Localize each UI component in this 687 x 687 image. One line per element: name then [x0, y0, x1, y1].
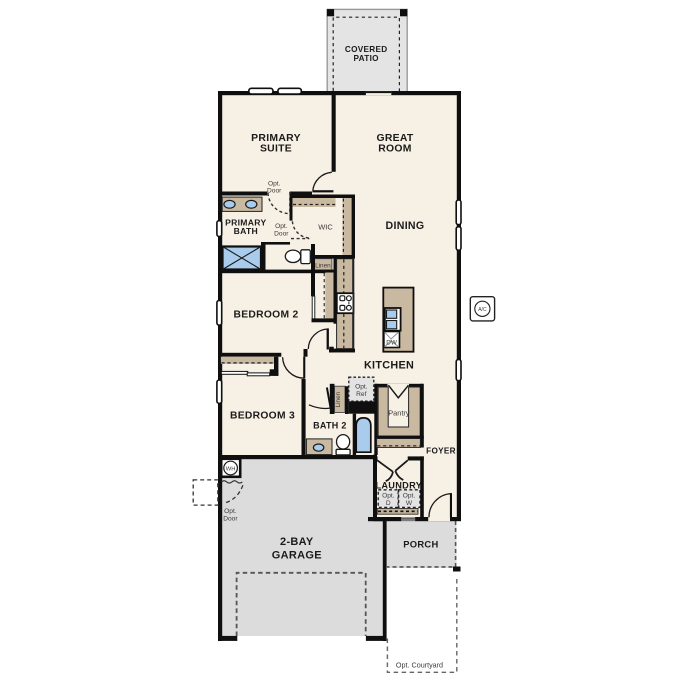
svg-text:Opt.: Opt.: [403, 493, 416, 500]
svg-text:GARAGE: GARAGE: [272, 549, 322, 561]
svg-text:Opt.: Opt.: [224, 508, 237, 515]
svg-text:Opt.: Opt.: [355, 384, 368, 391]
svg-text:W: W: [406, 500, 413, 507]
svg-text:WIC: WIC: [318, 223, 333, 232]
svg-text:A/C: A/C: [478, 307, 487, 313]
svg-text:2-BAY: 2-BAY: [280, 536, 314, 548]
svg-text:PRIMARY: PRIMARY: [251, 133, 301, 144]
svg-text:ROOM: ROOM: [378, 144, 412, 155]
svg-text:WH: WH: [226, 467, 236, 473]
svg-text:Linen: Linen: [335, 391, 342, 407]
svg-text:Linen: Linen: [315, 263, 331, 270]
svg-text:Pantry: Pantry: [388, 408, 410, 417]
svg-text:DINING: DINING: [386, 220, 425, 232]
svg-text:PORCH: PORCH: [403, 539, 438, 550]
svg-text:PATIO: PATIO: [354, 54, 380, 63]
svg-text:BEDROOM 3: BEDROOM 3: [230, 411, 295, 422]
svg-text:Door: Door: [223, 515, 238, 522]
svg-text:Opt. Courtyard: Opt. Courtyard: [396, 661, 443, 670]
svg-text:Ref: Ref: [356, 391, 366, 398]
svg-text:COVERED: COVERED: [345, 45, 388, 54]
svg-text:Door: Door: [274, 230, 289, 237]
svg-text:Door: Door: [267, 188, 282, 195]
svg-text:BEDROOM 2: BEDROOM 2: [233, 309, 298, 320]
svg-text:D: D: [386, 500, 391, 507]
svg-text:Opt.: Opt.: [382, 493, 395, 500]
svg-text:SUITE: SUITE: [260, 144, 292, 155]
svg-text:FOYER: FOYER: [426, 446, 456, 455]
svg-text:BATH 2: BATH 2: [313, 420, 347, 430]
svg-text:DW: DW: [386, 339, 398, 346]
svg-text:BATH: BATH: [234, 226, 258, 236]
svg-text:Opt.: Opt.: [268, 180, 281, 187]
svg-text:GREAT: GREAT: [376, 133, 413, 144]
svg-text:KITCHEN: KITCHEN: [364, 360, 414, 372]
svg-text:Opt.: Opt.: [275, 223, 288, 230]
